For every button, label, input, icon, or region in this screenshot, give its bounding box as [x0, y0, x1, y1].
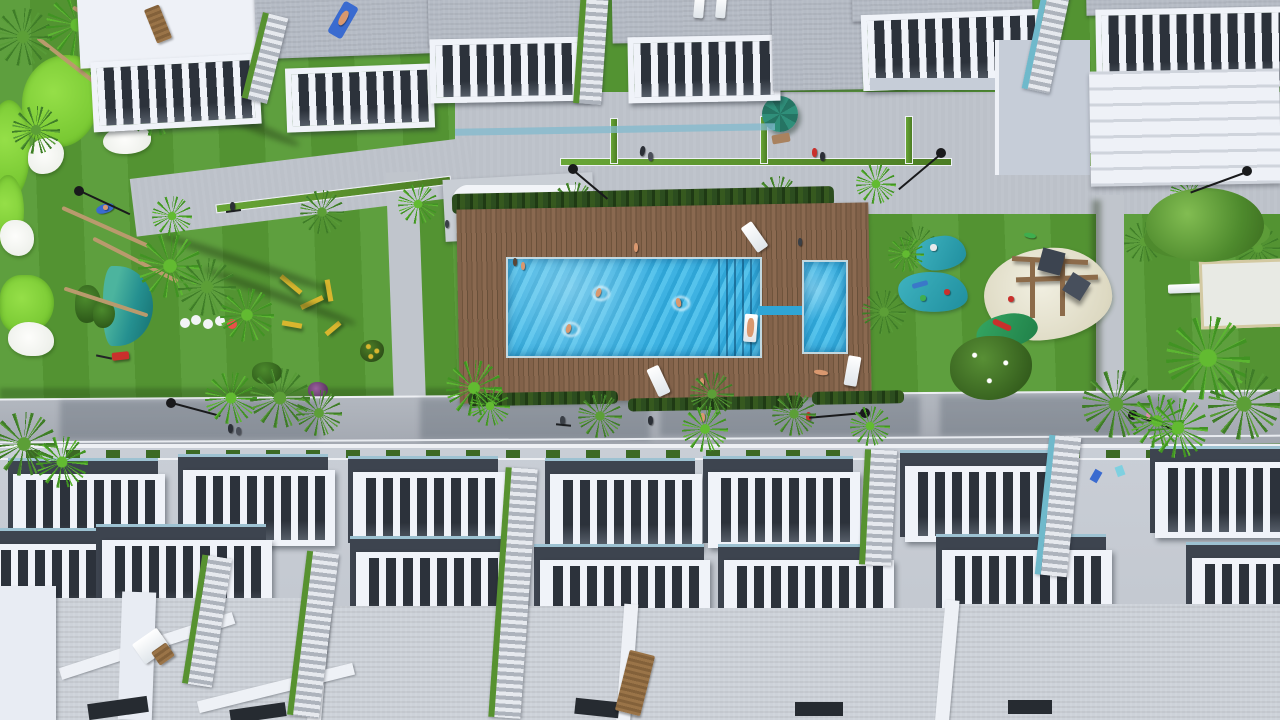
- street-lamp: [1242, 166, 1252, 176]
- house-balustrade: [550, 474, 702, 550]
- person: [236, 427, 241, 435]
- palm-tree: [36, 436, 88, 488]
- person: [798, 238, 802, 246]
- street-lamp: [74, 186, 84, 196]
- roof-lounger: [693, 0, 705, 18]
- palm-tree: [856, 164, 896, 204]
- street-lamp: [568, 164, 578, 174]
- landscaping-strip: [905, 116, 913, 164]
- roof-skylight: [1008, 700, 1052, 714]
- house-roof: [950, 604, 1280, 720]
- house-balustrade: [905, 466, 1057, 542]
- street-lamp: [936, 148, 946, 158]
- house-balustrade: [1155, 462, 1280, 538]
- leafy-tree: [1146, 188, 1264, 262]
- palm-tree: [1208, 368, 1280, 440]
- landscaping-strip: [560, 158, 952, 166]
- palm-tree: [152, 196, 192, 236]
- play-item: [1008, 296, 1014, 302]
- house-wall: [0, 586, 56, 720]
- palm-tree: [220, 288, 274, 342]
- palm-tree: [300, 190, 344, 234]
- palm-tree: [888, 236, 924, 272]
- person: [812, 148, 817, 157]
- terrace-balustrade: [90, 54, 261, 133]
- person: [820, 152, 825, 161]
- palm-tree: [1148, 398, 1208, 458]
- roof-skylight: [795, 702, 843, 716]
- palm-tree: [398, 184, 438, 224]
- play-structure-beam: [1030, 260, 1035, 318]
- sand-bunker: [8, 322, 54, 356]
- person: [521, 262, 525, 270]
- roof-lounger: [715, 0, 727, 18]
- person: [103, 205, 108, 210]
- terrace-balustrade: [285, 63, 435, 132]
- terrace-balustrade: [429, 37, 590, 104]
- person-on-float: [746, 318, 754, 337]
- palm-tree: [296, 390, 342, 436]
- sand-bunker: [0, 220, 34, 256]
- palm-tree: [772, 392, 816, 436]
- house-balustrade: [708, 472, 860, 548]
- terrace-balustrade: [627, 35, 780, 104]
- person: [228, 424, 233, 433]
- pool-connector-channel: [758, 306, 802, 315]
- main-swimming-pool: [506, 257, 762, 358]
- person: [648, 416, 653, 425]
- palm-tree: [470, 386, 510, 426]
- staircase-green: [859, 449, 897, 566]
- person: [648, 152, 653, 161]
- palm-tree: [850, 406, 890, 446]
- pool-float: [743, 314, 758, 343]
- person: [513, 258, 517, 266]
- palm-tree: [682, 406, 728, 452]
- kids-swimming-pool: [802, 260, 848, 354]
- palm-tree: [862, 290, 906, 334]
- house-roof: [628, 608, 952, 720]
- person: [634, 243, 638, 252]
- play-item: [944, 289, 950, 295]
- street-lamp: [166, 398, 176, 408]
- palm-tree: [578, 394, 622, 438]
- palm-tree: [12, 106, 60, 154]
- play-item: [920, 295, 926, 301]
- aerial-render-scene: [0, 0, 1280, 720]
- hedge-border-bottom: [812, 390, 904, 405]
- band-top-line: [0, 444, 1280, 448]
- apartment-wing-roof: [771, 0, 863, 91]
- person: [445, 220, 449, 228]
- play-item: [930, 244, 937, 251]
- landscaping-strip: [610, 118, 618, 164]
